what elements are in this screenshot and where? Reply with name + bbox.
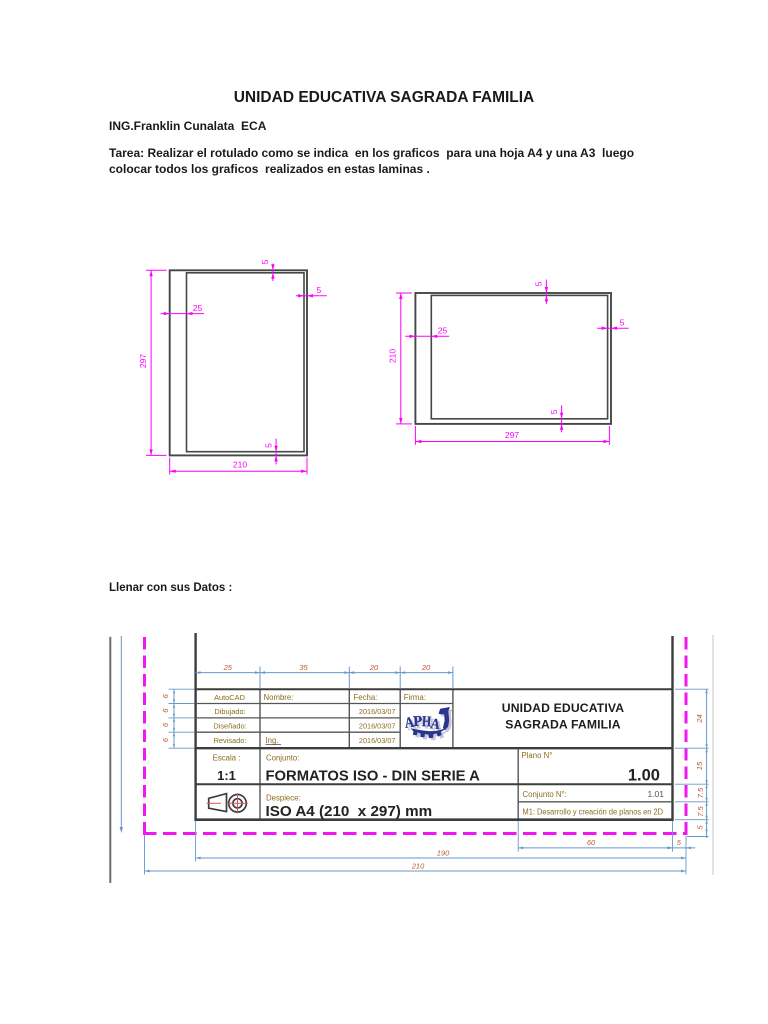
svg-text:25: 25 — [193, 303, 203, 313]
svg-text:297: 297 — [138, 354, 148, 368]
svg-text:297: 297 — [505, 430, 519, 440]
svg-text:SAGRADA FAMILIA: SAGRADA FAMILIA — [505, 717, 621, 731]
svg-text:2016/03/07: 2016/03/07 — [359, 707, 396, 716]
svg-text:1.00: 1.00 — [628, 767, 660, 785]
svg-text:5: 5 — [260, 259, 270, 264]
svg-text:60: 60 — [587, 838, 596, 847]
svg-text:Diseñado:: Diseñado: — [213, 722, 246, 731]
svg-text:25: 25 — [223, 663, 233, 672]
svg-text:24: 24 — [695, 714, 704, 723]
svg-text:5: 5 — [263, 443, 273, 448]
svg-text:6: 6 — [161, 693, 170, 698]
svg-text:15: 15 — [695, 761, 704, 770]
svg-text:M1: Desarrollo y creación de p: M1: Desarrollo y creación de planos en 2… — [523, 807, 664, 816]
svg-text:5: 5 — [620, 318, 625, 328]
svg-text:5: 5 — [677, 838, 682, 847]
svg-text:Fecha:: Fecha: — [354, 693, 378, 702]
svg-text:5: 5 — [695, 825, 704, 830]
svg-text:Revisado:: Revisado: — [214, 736, 247, 745]
svg-text:190: 190 — [437, 848, 450, 857]
svg-text:210: 210 — [233, 460, 247, 470]
svg-text:Plano N°: Plano N° — [522, 751, 553, 760]
svg-text:5: 5 — [317, 285, 322, 295]
svg-text:6: 6 — [161, 722, 170, 727]
svg-text:6: 6 — [161, 737, 170, 742]
svg-text:Conjunto N°:: Conjunto N°: — [523, 790, 567, 799]
svg-text:210: 210 — [411, 861, 425, 870]
svg-text:5: 5 — [534, 281, 544, 286]
svg-text:20: 20 — [369, 663, 379, 672]
svg-text:6: 6 — [161, 708, 170, 713]
svg-text:1:1: 1:1 — [217, 768, 236, 783]
svg-text:7.5: 7.5 — [696, 805, 705, 816]
svg-text:Nombre:: Nombre: — [264, 693, 294, 702]
svg-text:25: 25 — [438, 326, 448, 336]
svg-text:Firma:: Firma: — [404, 693, 426, 702]
svg-text:35: 35 — [299, 663, 308, 672]
svg-text:2016/03/07: 2016/03/07 — [359, 722, 396, 731]
svg-text:20: 20 — [421, 663, 431, 672]
svg-text:210: 210 — [388, 349, 398, 363]
svg-text:Escala :: Escala : — [213, 753, 241, 762]
svg-text:Dibujado:: Dibujado: — [214, 707, 245, 716]
svg-text:7.5: 7.5 — [696, 787, 705, 798]
svg-text:5: 5 — [549, 409, 559, 414]
svg-text:AutoCAD: AutoCAD — [214, 693, 245, 702]
svg-text:Ing.: Ing. — [266, 736, 279, 745]
svg-text:FORMATOS ISO - DIN SERIE A: FORMATOS ISO - DIN SERIE A — [266, 769, 481, 785]
svg-text:Despiece:: Despiece: — [266, 793, 301, 802]
svg-text:UNIDAD EDUCATIVA: UNIDAD EDUCATIVA — [502, 701, 625, 715]
svg-text:1.01: 1.01 — [647, 789, 664, 799]
svg-text:ISO A4 (210 x 297) mm: ISO A4 (210 x 297) mm — [266, 803, 433, 820]
svg-text:2016/03/07: 2016/03/07 — [359, 736, 396, 745]
svg-text:Conjunto:: Conjunto: — [266, 753, 299, 762]
